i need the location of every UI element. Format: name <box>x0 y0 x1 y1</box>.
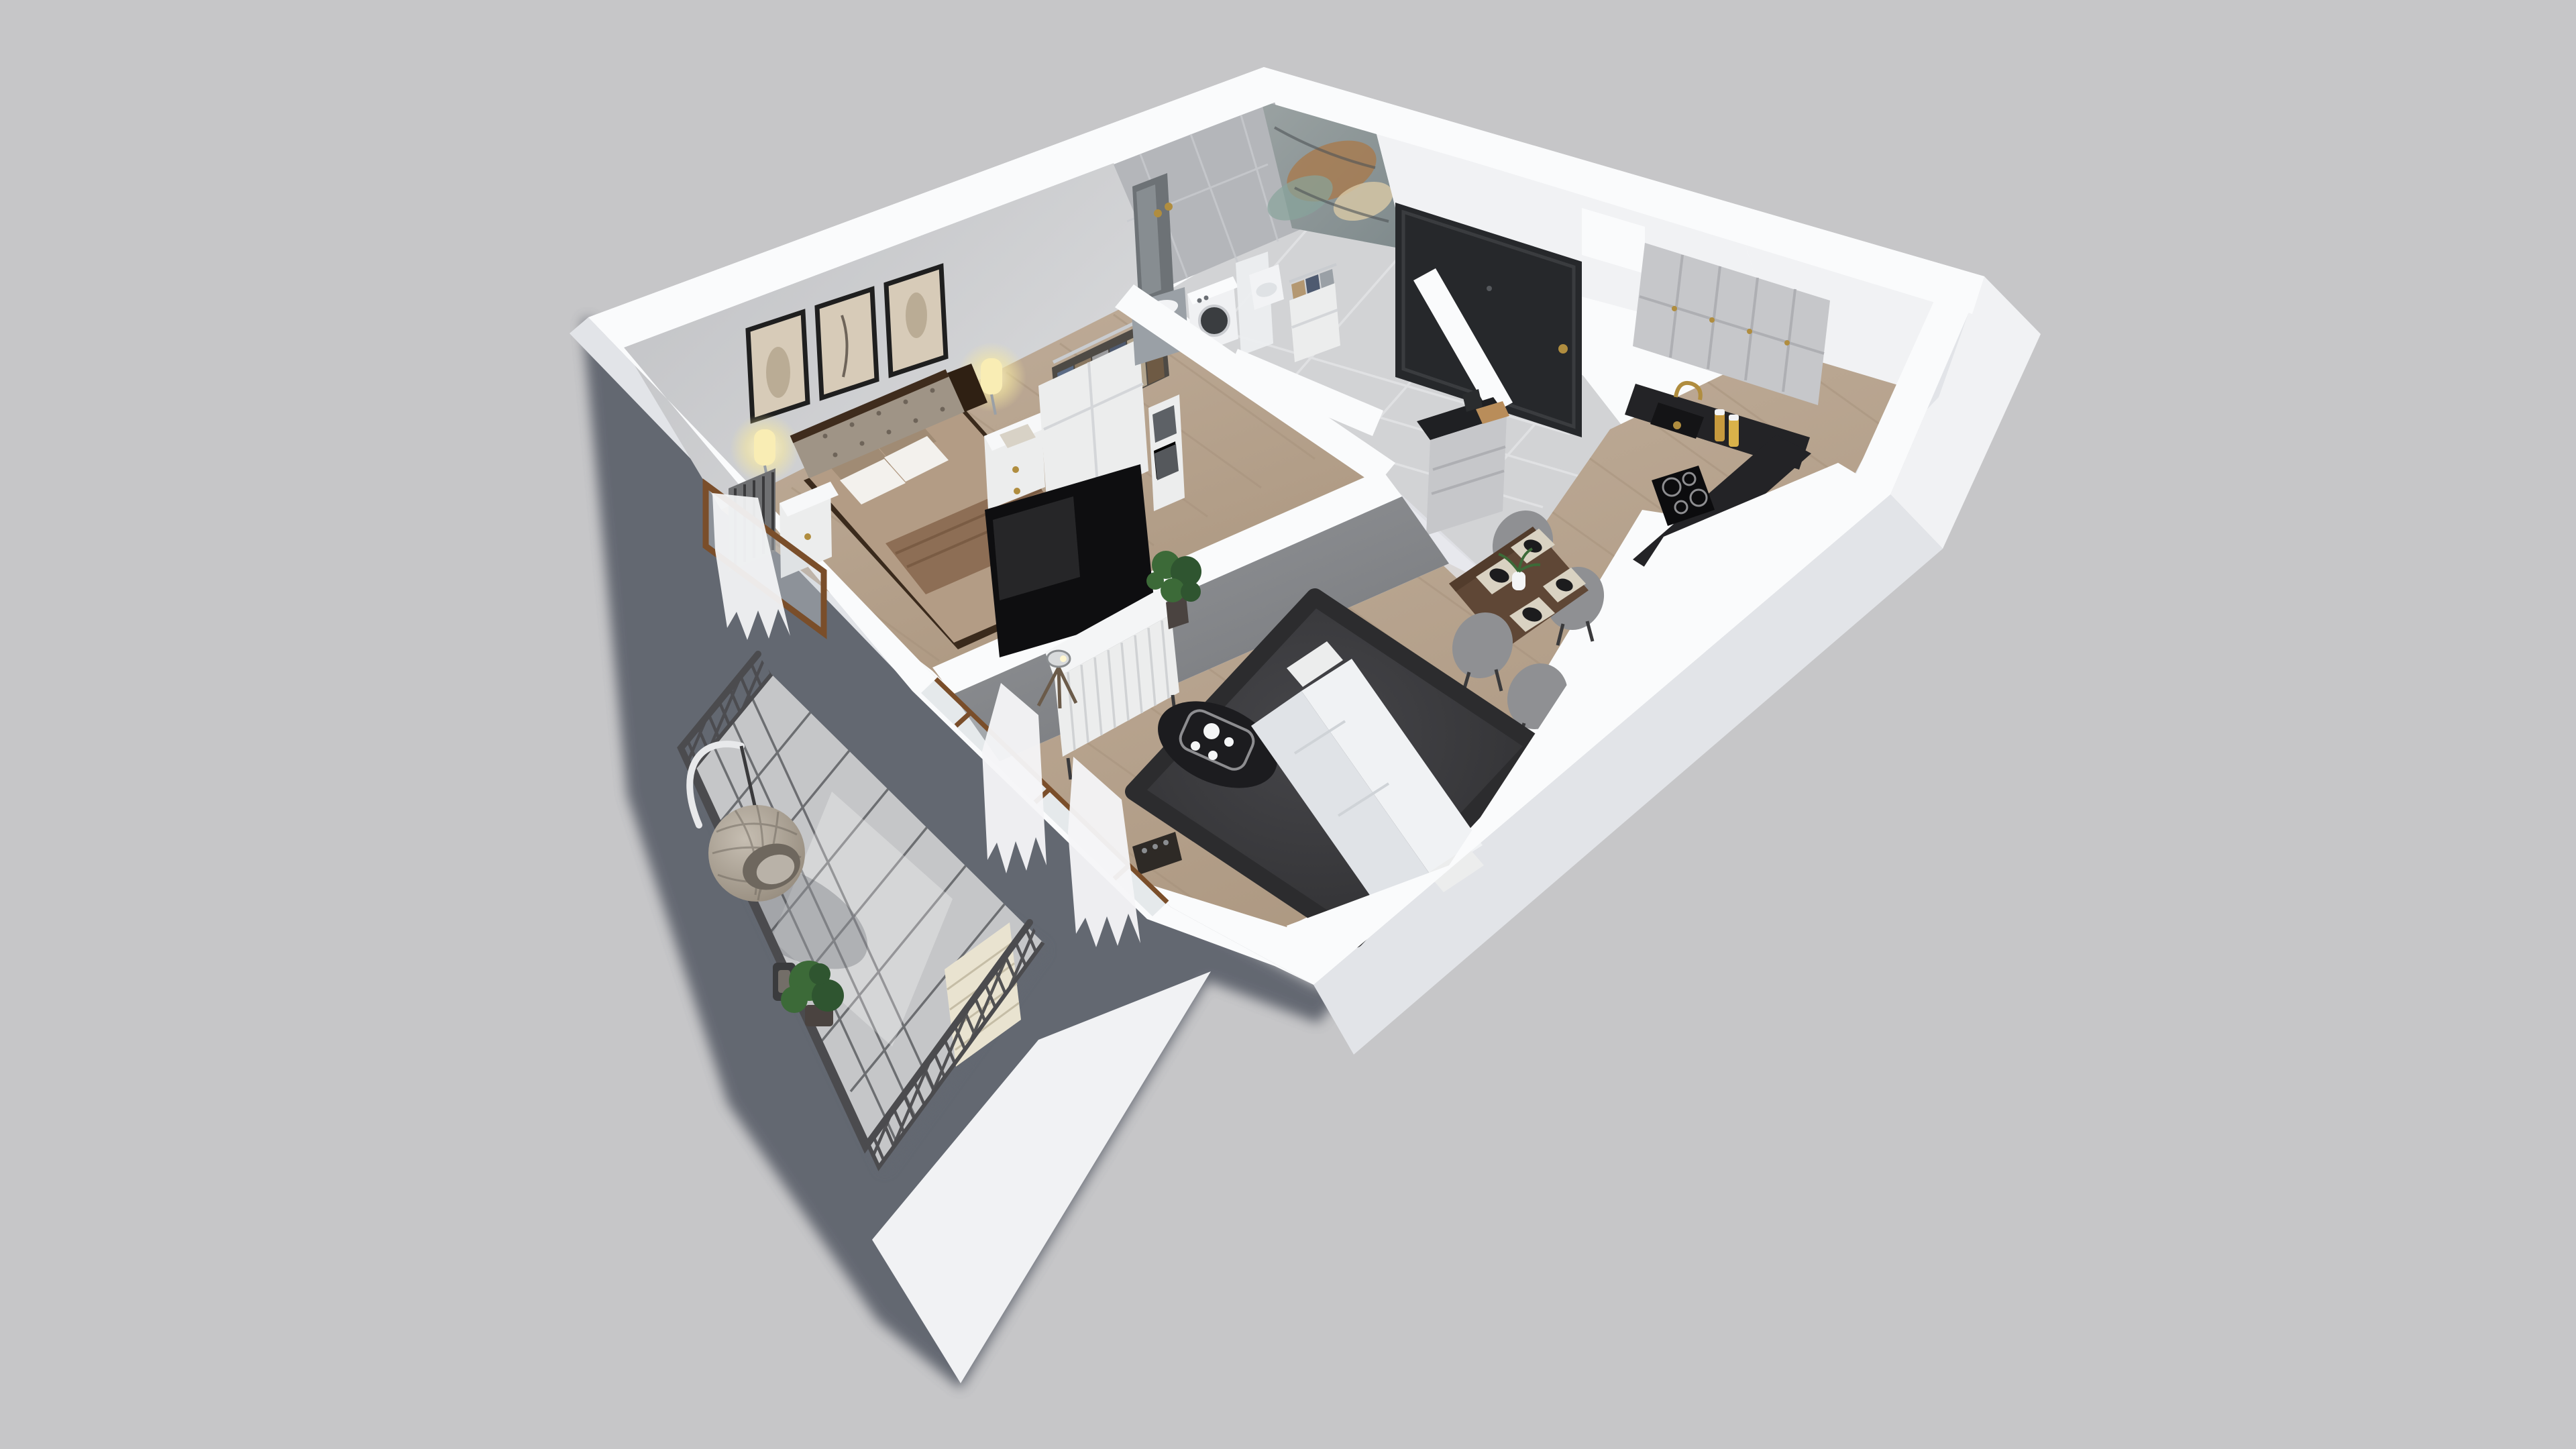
teapot <box>1203 723 1220 739</box>
coat-cabinet <box>1289 264 1340 362</box>
mirror-sconce-1 <box>1154 209 1162 217</box>
door-handle <box>1558 344 1568 354</box>
tea-cup-1 <box>1191 741 1200 751</box>
tea-cup-2 <box>1208 751 1218 760</box>
door-peephole <box>1487 286 1492 291</box>
floor-plan-render <box>0 0 2576 1449</box>
apartment-3d-svg <box>0 0 2576 1449</box>
mirror-sconce-2 <box>1165 203 1173 211</box>
sink-drain <box>1673 421 1681 429</box>
storage-shelf <box>1148 394 1185 511</box>
tea-cup-3 <box>1224 737 1234 747</box>
